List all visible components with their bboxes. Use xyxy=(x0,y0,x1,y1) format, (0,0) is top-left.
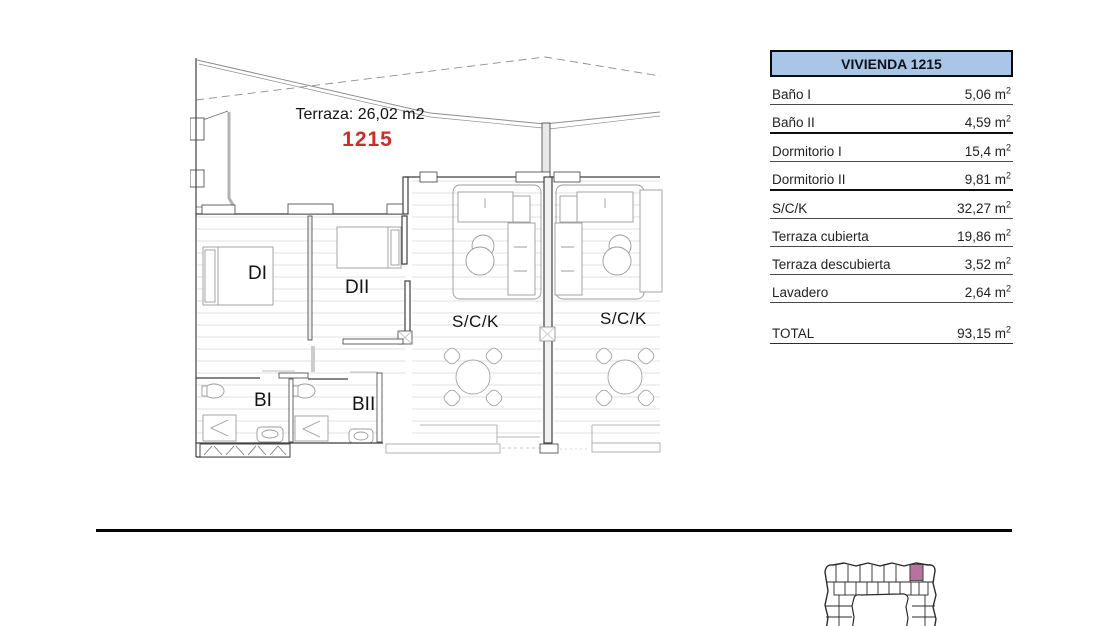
row-label: Dormitorio II xyxy=(772,172,846,187)
table-row: Terraza descubierta 3,52 m2 xyxy=(770,247,1013,275)
highlighted-unit xyxy=(910,565,923,581)
table-row: Dormitorio II 9,81 m2 xyxy=(770,162,1013,191)
table-row: Terraza cubierta 19,86 m2 xyxy=(770,219,1013,247)
row-label: Terraza cubierta xyxy=(772,229,869,244)
courtyard xyxy=(852,594,908,626)
row-label: Lavadero xyxy=(772,285,828,300)
table-title: VIVIENDA 1215 xyxy=(770,50,1013,77)
plan-sheet-page: Terraza: 26,02 m2 1215 DI DII S/C/K S/C/… xyxy=(0,0,1110,626)
row-label: S/C/K xyxy=(772,201,807,216)
table-row: Lavadero 2,64 m2 xyxy=(770,275,1013,303)
floor-hatch-corridor xyxy=(197,344,405,376)
table-row: Baño I 5,06 m2 xyxy=(770,77,1013,105)
row-label: Baño I xyxy=(772,87,811,102)
room-label-dormitorio-1: DI xyxy=(248,264,267,283)
terrace-enclosure xyxy=(190,111,234,207)
row-value: 15,4 m2 xyxy=(965,144,1011,159)
row-value: 4,59 m2 xyxy=(965,115,1011,130)
row-label: Baño II xyxy=(772,115,815,130)
total-label: TOTAL xyxy=(772,326,814,341)
terrace-area-label: Terraza: 26,02 m2 xyxy=(250,107,470,123)
table-spacer xyxy=(770,303,1013,316)
row-value: 3,52 m2 xyxy=(965,257,1011,272)
table-row: Dormitorio I 15,4 m2 xyxy=(770,134,1013,162)
total-value: 93,15 m2 xyxy=(957,326,1011,341)
row-value: 32,27 m2 xyxy=(957,201,1011,216)
room-label-dormitorio-2: DII xyxy=(345,278,369,297)
row-value: 9,81 m2 xyxy=(965,172,1011,187)
building-key-plan xyxy=(822,559,942,626)
lavadero-hatch xyxy=(200,444,290,457)
room-label-sck-left: S/C/K xyxy=(452,313,499,330)
room-label-sck-right: S/C/K xyxy=(600,310,647,327)
room-label-bano-2: BII xyxy=(352,395,375,414)
row-value: 5,06 m2 xyxy=(965,87,1011,102)
room-label-bano-1: BI xyxy=(254,391,272,410)
row-value: 19,86 m2 xyxy=(957,229,1011,244)
unit-number: 1215 xyxy=(300,129,435,150)
table-row: Baño II 4,59 m2 xyxy=(770,105,1013,134)
row-label: Dormitorio I xyxy=(772,144,842,159)
divider-line xyxy=(96,529,1012,532)
table-row: S/C/K 32,27 m2 xyxy=(770,191,1013,219)
table-total-row: TOTAL 93,15 m2 xyxy=(770,316,1013,344)
areas-table: VIVIENDA 1215 Baño I 5,06 m2 Baño II 4,5… xyxy=(770,50,1013,344)
terrace-column xyxy=(542,123,550,177)
row-label: Terraza descubierta xyxy=(772,257,891,272)
row-value: 2,64 m2 xyxy=(965,285,1011,300)
